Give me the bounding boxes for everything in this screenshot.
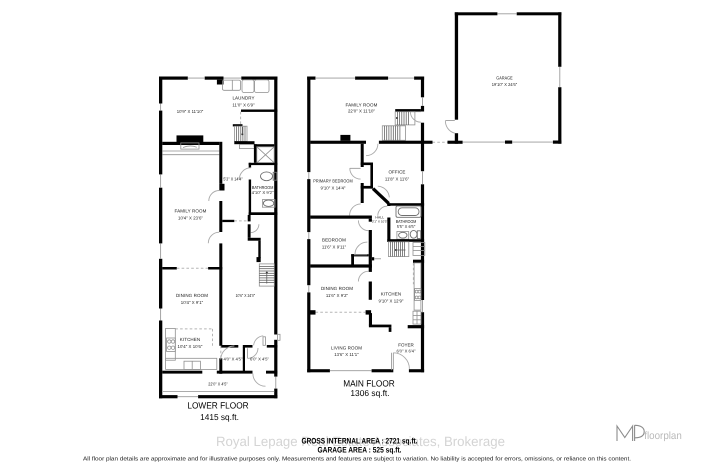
svg-text:13'6" X 11'1": 13'6" X 11'1" <box>334 352 359 357</box>
svg-text:DINING ROOM: DINING ROOM <box>321 286 353 291</box>
svg-text:KITCHEN: KITCHEN <box>381 292 401 297</box>
svg-text:11'8" X 11'6": 11'8" X 11'6" <box>385 176 410 181</box>
svg-text:GROSS INTERNAL AREA : 2721 sq.: GROSS INTERNAL AREA : 2721 sq.ft. <box>302 436 418 445</box>
svg-text:11'0" X 6'9": 11'0" X 6'9" <box>232 103 255 108</box>
svg-text:All floor plan details are app: All floor plan details are approximate a… <box>83 456 631 463</box>
svg-text:GARAGE: GARAGE <box>496 76 513 81</box>
svg-text:BEDROOM: BEDROOM <box>322 238 346 243</box>
svg-text:FAMILY ROOM: FAMILY ROOM <box>346 103 378 108</box>
svg-text:FAMILY ROOM: FAMILY ROOM <box>175 209 207 214</box>
svg-text:5'5" X 6'5": 5'5" X 6'5" <box>397 224 416 229</box>
svg-text:4'10" X 9'2": 4'10" X 9'2" <box>252 190 275 195</box>
svg-text:OFFICE: OFFICE <box>388 170 405 175</box>
svg-text:10'4" X 10'6": 10'4" X 10'6" <box>178 344 203 349</box>
svg-text:6'0" X 6'4": 6'0" X 6'4" <box>396 348 416 353</box>
svg-text:LIVING ROOM: LIVING ROOM <box>331 346 362 351</box>
svg-text:11'6" X 9'11": 11'6" X 9'11" <box>322 245 347 250</box>
svg-text:BATHROOM: BATHROOM <box>252 185 274 190</box>
svg-text:10'9" X 11'10": 10'9" X 11'10" <box>177 109 204 114</box>
svg-text:LAUNDRY: LAUNDRY <box>232 96 254 101</box>
svg-text:19'10" X 24'6": 19'10" X 24'6" <box>492 82 518 87</box>
svg-text:PRIMARY BEDROOM: PRIMARY BEDROOM <box>313 179 353 184</box>
svg-text:DINING ROOM: DINING ROOM <box>176 293 208 298</box>
svg-text:11'6" X 9'2": 11'6" X 9'2" <box>326 293 349 298</box>
svg-text:4'0" X 4'5": 4'0" X 4'5" <box>223 357 243 362</box>
svg-text:BATHROOM: BATHROOM <box>396 219 417 224</box>
svg-text:LOWER FLOOR: LOWER FLOOR <box>187 401 249 411</box>
svg-text:10'4" X 9'1": 10'4" X 9'1" <box>181 300 204 305</box>
svg-text:22'0" X 11'10": 22'0" X 11'10" <box>348 109 375 114</box>
svg-text:9'10" X 14'4": 9'10" X 14'4" <box>321 186 346 191</box>
svg-text:6'0" X 4'5": 6'0" X 4'5" <box>250 357 270 362</box>
svg-text:5'3" X 14'4": 5'3" X 14'4" <box>223 176 243 181</box>
svg-text:GARAGE AREA : 525 sq.ft.: GARAGE AREA : 525 sq.ft. <box>318 445 402 454</box>
svg-text:3'1" X 10'5": 3'1" X 10'5" <box>372 220 388 224</box>
svg-text:floorplan: floorplan <box>644 430 682 442</box>
svg-text:10'6" X 24'0": 10'6" X 24'0" <box>236 293 256 298</box>
svg-text:KITCHEN: KITCHEN <box>180 337 200 342</box>
svg-text:9'10" X 12'9": 9'10" X 12'9" <box>379 298 404 303</box>
svg-text:FOYER: FOYER <box>398 343 414 348</box>
svg-text:1415 sq.ft.: 1415 sq.ft. <box>200 412 239 422</box>
svg-text:22'0" X 4'5": 22'0" X 4'5" <box>208 381 228 386</box>
svg-text:1306 sq.ft.: 1306 sq.ft. <box>350 388 389 398</box>
svg-text:10'4" X 23'6": 10'4" X 23'6" <box>178 216 203 221</box>
